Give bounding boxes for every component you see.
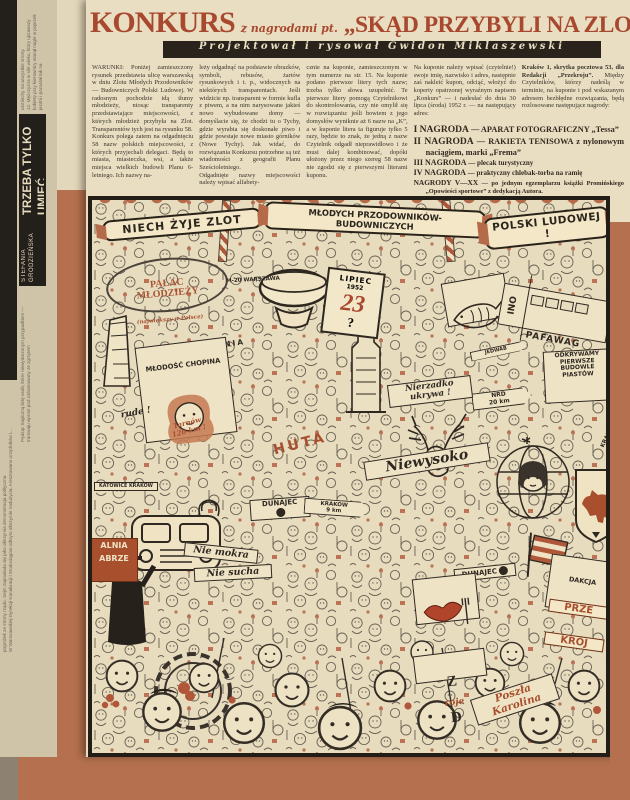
bull-shield-doodle <box>574 466 610 544</box>
prize-1: I NAGRODA — APARAT FOTOGRAFICZNY „Tessa” <box>414 124 624 136</box>
folded-neighbour-page: uśmiechy na wszystkie strony. 12. Mężczy… <box>0 0 57 757</box>
dunajec-disc-2 <box>499 566 509 576</box>
calendar-sheet: LIPIEC 1952 23 ? <box>320 267 386 340</box>
lips-placard <box>412 573 480 625</box>
backing-board <box>610 222 630 800</box>
redakcja-przekroj-sign: DAKCJA PRZE KRÓJ <box>545 554 610 617</box>
neighbour-author: STEFANIA GRODZIEŃSKA <box>21 218 44 282</box>
zabrze-red-sign: ALNIA ABRZE <box>90 538 138 582</box>
lips-fork-doodle <box>420 594 475 631</box>
zlot-parade-cartoon: NIECH ŻYJE ZLOT MŁODYCH PRZODOWNIKÓW-BUD… <box>88 196 610 757</box>
illustrator-credit-bar: Projektował i rysował Gwidon Miklaszewsk… <box>163 41 601 58</box>
prize-5: NAGRODY V—XX — po jednym egzemplarzu ksi… <box>414 178 624 196</box>
headline-quote: „SKĄD PRZYBYLI NA ZLOT?” <box>344 12 630 39</box>
rules-column-3: cznie na kuponie, zamieszczonym w tym nu… <box>306 64 407 196</box>
page-fold-shadow <box>0 0 17 380</box>
rules-column-2: leży odgadnąć na podstawie obrazków, sym… <box>199 64 300 196</box>
prize-3: III NAGRODA — plecak turystyczny <box>414 158 624 168</box>
contest-rules-columns: WARUNKI: Poniżej zamieszczony rysunek pr… <box>86 64 630 196</box>
prize-2: II NAGRODA — RAKIETA TENISOWA z nylonowy… <box>414 136 624 158</box>
neighbour-title: TRZEBA TYLKO UMIEĆ <box>21 118 44 215</box>
headline-subtitle: z nagrodami pt. <box>241 22 338 35</box>
neighbour-column-title-box: STEFANIA GRODZIEŃSKA TRZEBA TYLKO UMIEĆ <box>19 114 46 286</box>
budowle-piastow-sign: ODKRYWAMY PIERWSZE BUDOWLE PIASTÓW <box>543 348 610 403</box>
neighbour-text-fragment-bottom: pogróżek ze strony rządu. Sejm zapowiada… <box>2 392 54 652</box>
headline-word-konkurs: KONKURS <box>90 6 235 40</box>
rules-column-4: Na kuponie należy wpisać (czytelnie!) sw… <box>414 64 516 121</box>
dunajec-sign-1: DUNAJEC <box>249 496 310 521</box>
page-edge <box>0 757 18 800</box>
katowice-krakow-sign: KATOWICE KRAKÓW <box>94 482 158 491</box>
rules-column-1: WARUNKI: Poniżej zamieszczony rysunek pr… <box>92 64 193 196</box>
wagon-windows <box>530 295 589 315</box>
scanned-magazine-page: { "colors": { "background_frame": "#b571… <box>0 0 630 800</box>
prize-list: I NAGRODA — APARAT FOTOGRAFICZNY „Tessa”… <box>414 121 624 196</box>
rules-right-block: Na kuponie należy wpisać (czytelnie!) sw… <box>414 64 624 196</box>
dunajec-disc <box>275 507 285 517</box>
page-margin <box>57 0 88 190</box>
neighbour-text-fragment-top: uśmiechy na wszystkie strony. 12. Mężczy… <box>20 4 54 110</box>
contest-headline: KONKURS z nagrodami pt. „SKĄD PRZYBYLI N… <box>90 6 628 40</box>
copernicus-globe-doodle <box>494 436 572 524</box>
rules-column-5: Kraków 1, skrytka pocztowa 53, dla Redak… <box>522 64 624 121</box>
magazine-page: KONKURS z nagrodami pt. „SKĄD PRZYBYLI N… <box>86 0 630 757</box>
prize-4: IV NAGRODA — praktyczny chlebak-torba na… <box>414 168 624 178</box>
